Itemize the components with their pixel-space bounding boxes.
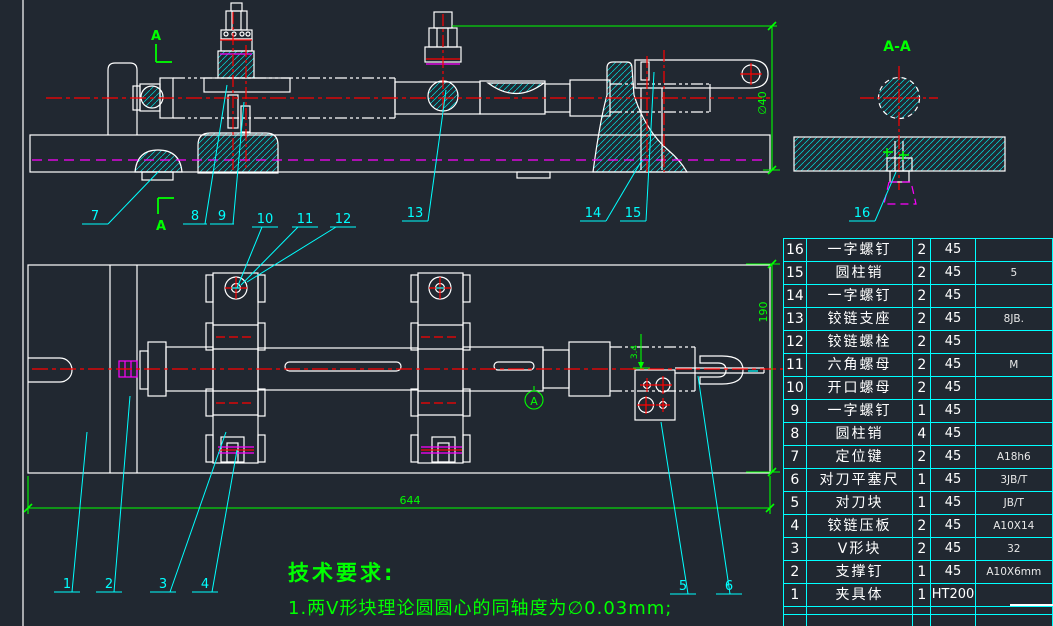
bom-cell-no: 8 [784,423,807,446]
bom-cell-empty [913,607,931,615]
bom-row: 15圆柱销2455 [784,262,1053,285]
dim-plan-depth: 190 [757,302,770,323]
bom-cell-nm: 铰链支座 [806,308,913,331]
bom-cell-no: 7 [784,446,807,469]
bom-cell-nm: 支撑钉 [806,561,913,584]
bom-cell-no: 1 [784,584,807,607]
bom-cell-mt: 45 [931,538,975,561]
bom-cell-mt: 45 [931,400,975,423]
balloon-9: 9 [218,209,226,224]
bom-cell-mt: 45 [931,423,975,446]
bom-cell-mt: 45 [931,377,975,400]
technical-requirements: 技术要求: 1.两V形块理论圆圆心的同轴度为∅0.03mm; 2.两V形块的V形… [288,557,745,626]
bom-row-partial [784,615,1053,626]
bom-cell-empty [975,615,1052,626]
bom-table: 16一字螺钉24515圆柱销245514一字螺钉24513铰链支座2458JB.… [783,238,1053,626]
bom-cell-no: 5 [784,492,807,515]
bom-cell-qt: 1 [913,561,931,584]
bom-row: 16一字螺钉245 [784,239,1053,262]
bom-cell-qt: 2 [913,515,931,538]
bom-cell-no: 12 [784,331,807,354]
bom-cell-nt: A10X14 [975,515,1052,538]
bom-cell-empty [806,607,913,615]
bom-row: 4铰链压板245A10X14 [784,515,1053,538]
bom-cell-qt: 1 [913,469,931,492]
bom-cell-no: 2 [784,561,807,584]
bom-cell-mt: 45 [931,331,975,354]
bom-cell-qt: 2 [913,285,931,308]
bom-cell-qt: 2 [913,377,931,400]
bom-cell-nm: 一字螺钉 [806,239,913,262]
bom-cell-nm: V形块 [806,538,913,561]
bom-cell-mt: 45 [931,469,975,492]
bom-cell-nt [975,285,1052,308]
bom-cell-nm: 对刀块 [806,492,913,515]
bom-cell-no: 14 [784,285,807,308]
bom-row-partial [784,607,1053,615]
bom-cell-nm: 圆柱销 [806,423,913,446]
cad-canvas: A A A-A A ∅40 190 644 3.4 7 8 9 10 11 12… [0,0,1053,626]
bom-cell-nt [975,400,1052,423]
key-hidden-outline [884,182,916,204]
bom-cell-qt: 1 [913,400,931,423]
section-view-title: A-A [883,39,911,55]
bom-cell-nt: JB/T [975,492,1052,515]
bom-cell-empty [784,615,807,626]
tech-req-title: 技术要求: [288,557,745,587]
bom-cell-nm: 圆柱销 [806,262,913,285]
section-letter-top: A [151,29,161,44]
bom-cell-no: 6 [784,469,807,492]
bom-cell-empty [931,607,975,615]
bom-cell-nm: 一字螺钉 [806,285,913,308]
balloon-15: 15 [625,206,642,221]
mount-slot [28,358,72,382]
shaft-groove [488,83,544,94]
bom-cell-qt: 4 [913,423,931,446]
bom-cell-empty [913,615,931,626]
bom-cell-nm: 开口螺母 [806,377,913,400]
bom-row: 6对刀平塞尺1453JB/T [784,469,1053,492]
bom-cell-nm: 夹具体 [806,584,913,607]
bom-cell-qt: 2 [913,354,931,377]
bom-cell-mt: 45 [931,354,975,377]
bom-cell-nm: 定位键 [806,446,913,469]
bom-cell-no: 3 [784,538,807,561]
balloon-11: 11 [297,212,314,227]
tech-req-line-1: 1.两V形块理论圆圆心的同轴度为∅0.03mm; [288,594,745,620]
vblock-station-2-plan [411,273,470,463]
bom-row: 13铰链支座2458JB. [784,308,1053,331]
bom-cell-nm: 六角螺母 [806,354,913,377]
bom-cell-no: 16 [784,239,807,262]
bom-cell-empty [975,607,1052,615]
balloon-10: 10 [257,212,274,227]
plan-view [28,265,790,473]
bom-row: 3V形块24532 [784,538,1053,561]
bom-row: 9一字螺钉145 [784,400,1053,423]
bom-cell-nm: 铰链螺栓 [806,331,913,354]
balloon-12: 12 [335,212,352,227]
bom-cell-nm: 对刀平塞尺 [806,469,913,492]
bom-row: 14一字螺钉245 [784,285,1053,308]
fork-support-plan [700,356,743,384]
bom-cell-nt [975,331,1052,354]
section-letter-bottom: A [156,219,166,234]
dim-plan-length: 644 [400,494,421,507]
bom-cell-mt: 45 [931,515,975,538]
bom-cell-no: 13 [784,308,807,331]
dim-front-height: ∅40 [756,91,769,115]
bom-cell-nt: A18h6 [975,446,1052,469]
touch-off-plate-plan [635,370,675,420]
bom-cell-nt [975,377,1052,400]
bom-row: 2支撑钉145A10X6mm [784,561,1053,584]
front-view [30,3,772,180]
balloon-4: 4 [201,577,209,592]
bom-cell-nt: 3JB/T [975,469,1052,492]
bom-row: 7定位键245A18h6 [784,446,1053,469]
bom-cell-nt [975,423,1052,446]
bom-cell-mt: 45 [931,446,975,469]
dim-probe-offset: 3.4 [630,345,640,360]
bom-cell-qt: 1 [913,492,931,515]
positioning-key-dome [135,150,182,172]
bom-cell-nm: 一字螺钉 [806,400,913,423]
bom-cell-mt: 45 [931,262,975,285]
bom-cell-mt: HT200 [931,584,975,607]
bom-cell-mt: 45 [931,308,975,331]
bom-cell-nt: 5 [975,262,1052,285]
bom-row: 8圆柱销445 [784,423,1053,446]
datum-a-label: A [530,395,538,408]
bom-row: 12铰链螺栓245 [784,331,1053,354]
bom-cell-nt [975,239,1052,262]
bom-row: 10开口螺母245 [784,377,1053,400]
bom-cell-qt: 2 [913,331,931,354]
bom-cell-qt: 1 [913,584,931,607]
bom-cell-mt: 45 [931,561,975,584]
bom-cell-empty [931,615,975,626]
bom-cell-empty [806,615,913,626]
bom-cell-nm: 铰链压板 [806,515,913,538]
section-aa-view [794,66,1005,204]
bom-cell-qt: 2 [913,446,931,469]
bom-row: 11六角螺母245M [784,354,1053,377]
bom-cell-no: 9 [784,400,807,423]
balloon-16: 16 [854,206,871,221]
bom-cell-mt: 45 [931,285,975,308]
bom-cell-mt: 45 [931,239,975,262]
balloon-8: 8 [191,209,199,224]
bom-cell-nt: A10X6mm [975,561,1052,584]
bom-cell-nt: 8JB. [975,308,1052,331]
bom-cell-qt: 2 [913,262,931,285]
balloon-1: 1 [63,577,71,592]
balloon-3: 3 [159,577,167,592]
vblock-station-1-plan [206,273,265,463]
bom-cell-no: 11 [784,354,807,377]
bom-cell-qt: 2 [913,239,931,262]
balloon-7: 7 [91,209,99,224]
bom-cell-qt: 2 [913,308,931,331]
title-block-edge [1010,604,1053,606]
hinge-support-section [593,62,687,172]
balloon-2: 2 [105,577,113,592]
bom-row: 5对刀块145JB/T [784,492,1053,515]
bom-cell-no: 4 [784,515,807,538]
balloon-13: 13 [407,206,424,221]
bom-cell-mt: 45 [931,492,975,515]
bom-cell-qt: 2 [913,538,931,561]
bom-cell-nt: M [975,354,1052,377]
bom-cell-no: 15 [784,262,807,285]
bom-cell-no: 10 [784,377,807,400]
bom-cell-empty [784,607,807,615]
bom-cell-nt: 32 [975,538,1052,561]
balloon-14: 14 [585,206,602,221]
